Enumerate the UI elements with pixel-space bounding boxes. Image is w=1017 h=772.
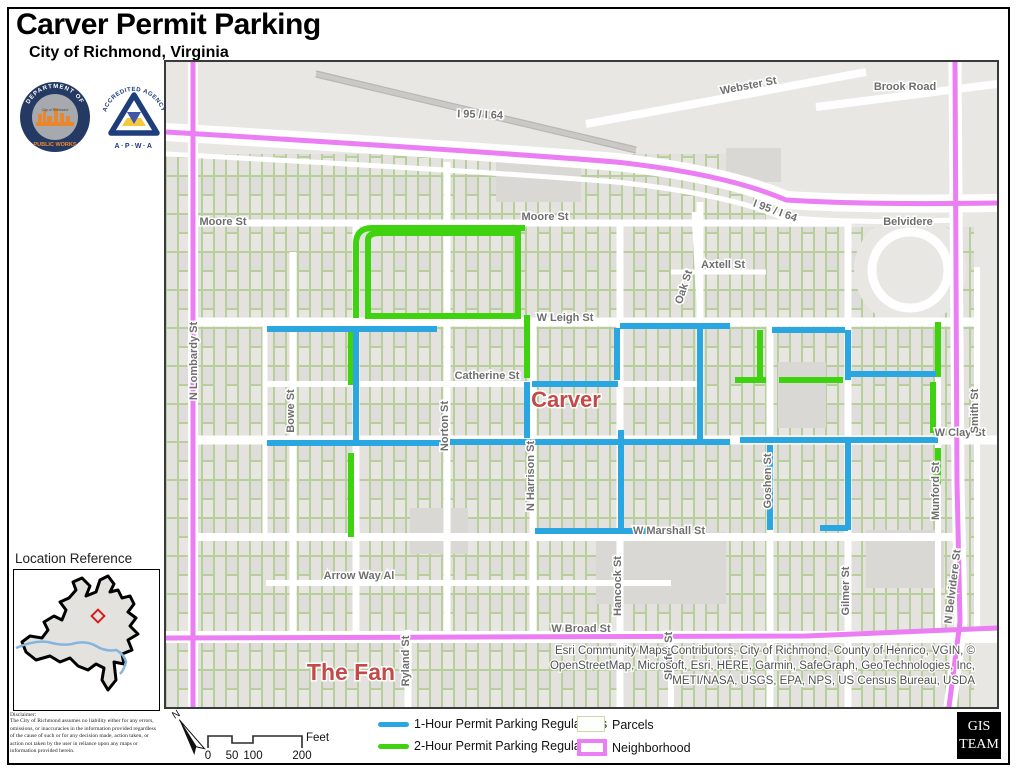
scale-unit: Feet (306, 732, 330, 744)
street-label-moore-east: Moore St (521, 211, 568, 223)
gis-team-line1: GIS (957, 718, 1001, 736)
gis-team-line2: TEAM (957, 736, 1001, 754)
attribution-line-3: METI/NASA, USGS, EPA, NPS, US Census Bur… (672, 675, 975, 687)
street-label-gilmer: Gilmer St (840, 566, 852, 615)
attribution-line-1: Esri Community Maps Contributors, City o… (555, 645, 976, 657)
area-label-carver: Carver (531, 387, 601, 412)
gis-team-logo: GIS TEAM (957, 712, 1001, 759)
street-label-leigh: W Leigh St (537, 312, 594, 324)
street-label-smith: Smith St (969, 388, 981, 433)
scale-tick-200: 200 (292, 750, 311, 762)
street-label-ryland: Ryland St (400, 635, 412, 686)
disclaimer-body: The City of Richmond assumes no liabilit… (10, 718, 162, 756)
map-document-page: { "page": { "title": "Carver Permit Park… (0, 0, 1017, 772)
street-label-brook-road: Brook Road (874, 81, 936, 93)
attribution-line-2: OpenStreetMap, Microsoft, Esri, HERE, Ga… (550, 660, 975, 672)
main-map: Webster St Brook Road I 95 / I 64 I 95 /… (164, 60, 999, 709)
legend-item-parcels: Parcels (612, 718, 654, 732)
apwa-logo: ACCREDITED AGENCY A·P·W·A (98, 82, 170, 154)
legend-swatch-parcels (577, 716, 605, 732)
scale-tick-100: 100 (243, 750, 262, 762)
street-label-munford: Munford St (930, 462, 942, 520)
street-label-marshall: W Marshall St (633, 525, 705, 537)
scale-tick-50: 50 (226, 750, 239, 762)
legend-swatch-1hour (378, 722, 409, 727)
area-label-the-fan: The Fan (307, 659, 395, 685)
street-label-belvidere: Belvidere (883, 216, 933, 228)
location-reference-map (13, 569, 160, 711)
street-label-broad: W Broad St (551, 623, 611, 635)
street-label-catherine: Catherine St (455, 370, 520, 382)
street-label-moore-west: Moore St (199, 216, 246, 228)
dpw-center-text: City of Richmond (42, 108, 69, 112)
street-label-i95-west: I 95 / I 64 (457, 108, 504, 122)
page-title: Carver Permit Parking (16, 8, 321, 42)
street-label-bowe: Bowe St (285, 389, 297, 433)
street-label-lombardy: N Lombardy St (188, 322, 200, 401)
north-label: N (170, 708, 182, 721)
scale-bar: 0 50 100 200 Feet (202, 724, 347, 767)
street-label-axtell: Axtell St (701, 259, 745, 271)
legend-swatch-2hour (378, 744, 409, 749)
dpw-bottom-text: PUBLIC WORKS (33, 142, 76, 148)
street-label-goshen: Goshen St (762, 453, 774, 508)
street-label-norton: Norton St (439, 401, 451, 451)
location-reference-title: Location Reference (15, 551, 132, 566)
dpw-logo: DEPARTMENT OF PUBLIC WORKS City of Richm… (18, 80, 92, 154)
street-label-arrow-way: Arrow Way Al (324, 570, 395, 582)
disclaimer: Disclaimer: The City of Richmond assumes… (10, 712, 162, 756)
legend-swatch-neighborhood (577, 739, 607, 756)
scale-tick-0: 0 (205, 750, 211, 762)
apwa-bottom-text: A·P·W·A (115, 143, 154, 150)
street-label-harrison: N Harrison St (525, 441, 537, 512)
legend-item-neighborhood: Neighborhood (612, 741, 691, 755)
street-label-hancock: Hancock St (612, 556, 624, 616)
